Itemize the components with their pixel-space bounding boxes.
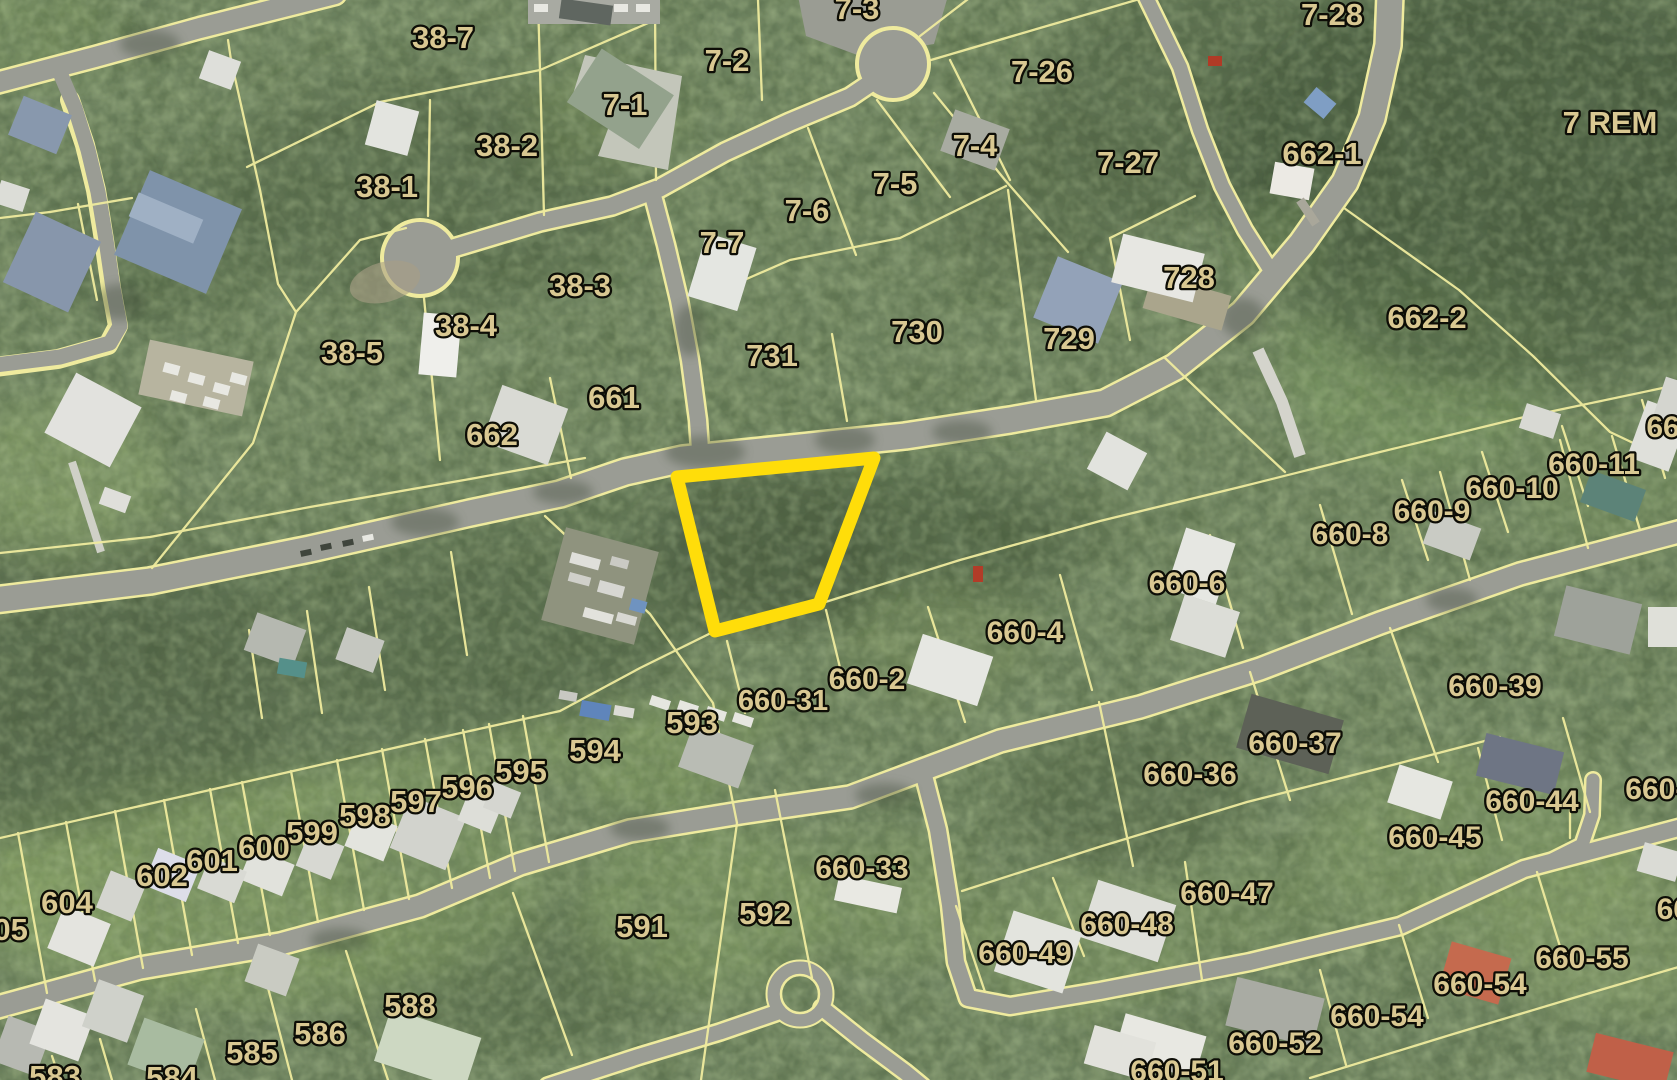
svg-text:602: 602 (136, 858, 188, 893)
svg-text:600: 600 (238, 830, 290, 865)
svg-text:660-9: 660-9 (1394, 495, 1471, 528)
svg-text:596: 596 (441, 770, 493, 805)
svg-text:7-28: 7-28 (1301, 0, 1363, 32)
svg-text:660-49: 660-49 (978, 937, 1071, 970)
svg-text:38-1: 38-1 (356, 169, 418, 204)
svg-text:660-37: 660-37 (1248, 727, 1341, 760)
svg-text:660-36: 660-36 (1143, 758, 1236, 791)
svg-text:592: 592 (739, 896, 791, 931)
svg-text:660-2: 660-2 (829, 663, 906, 696)
svg-text:662-1: 662-1 (1282, 136, 1361, 171)
svg-text:604: 604 (41, 885, 93, 920)
svg-text:7-6: 7-6 (785, 193, 830, 228)
svg-text:731: 731 (746, 338, 798, 373)
svg-text:38-7: 38-7 (412, 20, 474, 55)
svg-text:583: 583 (29, 1059, 81, 1080)
svg-text:7-4: 7-4 (953, 128, 999, 163)
svg-text:584: 584 (146, 1060, 198, 1080)
svg-text:660-8: 660-8 (1312, 518, 1389, 551)
svg-text:594: 594 (569, 733, 621, 768)
svg-text:38-3: 38-3 (549, 268, 611, 303)
svg-text:595: 595 (495, 754, 547, 789)
svg-text:585: 585 (226, 1035, 278, 1070)
svg-text:588: 588 (384, 988, 436, 1023)
svg-text:728: 728 (1163, 260, 1215, 295)
svg-text:7-26: 7-26 (1011, 54, 1073, 89)
svg-text:660-10: 660-10 (1465, 472, 1558, 505)
svg-text:605: 605 (0, 912, 28, 947)
svg-text:660-48: 660-48 (1080, 908, 1173, 941)
svg-text:660-47: 660-47 (1180, 877, 1273, 910)
svg-text:7-5: 7-5 (873, 166, 918, 201)
svg-text:38-5: 38-5 (321, 335, 383, 370)
svg-text:662-2: 662-2 (1387, 300, 1466, 335)
svg-text:730: 730 (891, 314, 943, 349)
svg-text:7 REM: 7 REM (1563, 105, 1658, 140)
svg-text:7-2: 7-2 (705, 43, 750, 78)
svg-text:660-5: 660-5 (1657, 893, 1677, 926)
svg-text:660-31: 660-31 (738, 685, 828, 717)
svg-text:660-11: 660-11 (1548, 448, 1640, 481)
svg-text:7-1: 7-1 (603, 87, 648, 122)
svg-text:660-54: 660-54 (1433, 968, 1527, 1001)
svg-text:7-7: 7-7 (700, 225, 745, 260)
svg-text:660-52: 660-52 (1228, 1027, 1321, 1060)
svg-text:7-27: 7-27 (1097, 145, 1159, 180)
svg-text:660-44: 660-44 (1485, 785, 1579, 818)
svg-text:38-2: 38-2 (476, 128, 538, 163)
svg-text:591: 591 (616, 909, 668, 944)
svg-text:660-55: 660-55 (1535, 942, 1628, 975)
svg-text:661: 661 (588, 380, 640, 415)
svg-text:660-54: 660-54 (1330, 1000, 1424, 1033)
svg-text:586: 586 (294, 1016, 346, 1051)
svg-text:660-6: 660-6 (1149, 567, 1226, 600)
svg-text:660-33: 660-33 (815, 852, 908, 885)
svg-text:662: 662 (466, 417, 518, 452)
svg-text:601: 601 (186, 843, 238, 878)
svg-text:593: 593 (666, 705, 718, 740)
svg-text:729: 729 (1043, 321, 1095, 356)
svg-text:660-45: 660-45 (1388, 821, 1481, 854)
svg-text:660-43: 660-43 (1625, 773, 1677, 806)
svg-text:660-51: 660-51 (1130, 1055, 1223, 1080)
svg-text:7-3: 7-3 (835, 0, 880, 26)
svg-text:597: 597 (390, 784, 442, 819)
svg-text:660-4: 660-4 (987, 616, 1064, 649)
svg-text:66: 66 (1646, 411, 1677, 444)
svg-text:599: 599 (286, 815, 338, 850)
svg-text:660-39: 660-39 (1448, 670, 1541, 703)
svg-text:598: 598 (339, 798, 391, 833)
svg-text:38-4: 38-4 (435, 308, 498, 343)
